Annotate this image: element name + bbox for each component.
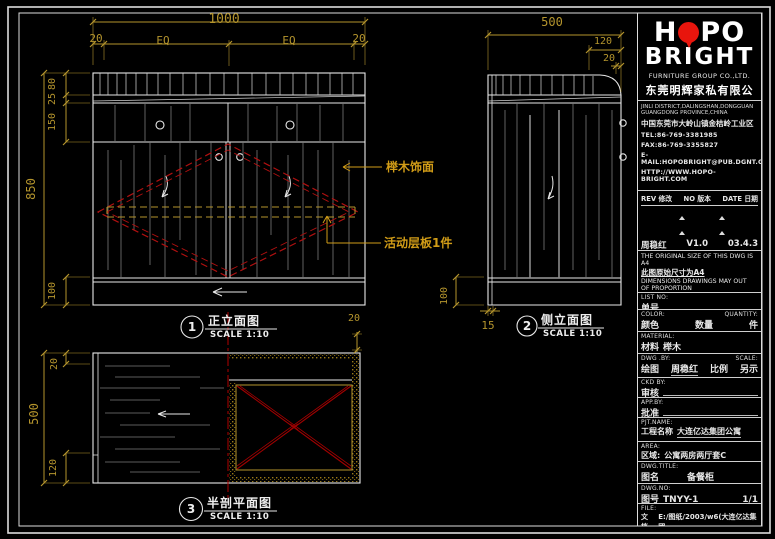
- revision-row: 周稳红 V1.0 03.4.3: [641, 236, 758, 251]
- field-app: APP.BY: 批准: [638, 398, 761, 418]
- note-en2: DIMENSIONS DRAWINGS MAY OUT: [641, 278, 758, 285]
- dim-front-150: 150: [48, 113, 58, 131]
- cad-sheet: 1000 20 EQ EQ 20 850 80 25 150 100 榉木饰面 …: [0, 0, 775, 539]
- field-list-no: LIST NO: 单号: [638, 293, 761, 310]
- field-area: AREA: 区域:公寓两房两厅套C: [638, 442, 761, 462]
- title-block: H PO BRIGHT FURNITURE GROUP CO.,LTD. 东莞明…: [637, 13, 762, 526]
- view-label-marks: [180, 316, 605, 521]
- field-ckd: CKD BY: 审核: [638, 378, 761, 398]
- rev-col: REV 修改: [641, 193, 672, 203]
- rev-version: V1.0: [686, 239, 708, 251]
- revision-table: REV 修改 NO 版本 DATE 日期 周稳红 V1.0 03.4.3: [638, 191, 761, 251]
- revision-empty-row: [641, 206, 758, 221]
- date-col: DATE 日期: [722, 193, 758, 203]
- label-shelf: 活动层板1件: [384, 237, 452, 249]
- logo-subtitle: FURNITURE GROUP CO.,LTD.: [641, 72, 758, 80]
- dim-side-500: 500: [541, 16, 563, 28]
- note-en1: THE ORIGINAL SIZE OF THIS DWG IS A4: [641, 253, 758, 267]
- address-fax: FAX:86-769-3355827: [641, 142, 758, 149]
- revision-header: REV 修改 NO 版本 DATE 日期: [641, 193, 758, 206]
- leader-lines: [323, 163, 382, 243]
- dim-side-100: 100: [440, 287, 450, 305]
- note-cn1: 此图原始尺寸为A4: [641, 267, 758, 278]
- field-project: PJT.NAME: 工程名称大连亿达集团公寓: [638, 418, 761, 442]
- logo-red-circle-icon: [678, 22, 699, 43]
- rev-date: 03.4.3: [728, 239, 758, 251]
- field-color-qty: COLOR: QUANTITY: 颜色 数量 件: [638, 310, 761, 332]
- dim-front-20-right: 20: [352, 33, 365, 44]
- dim-plan-20: 20: [50, 358, 60, 370]
- dim-side-120: 120: [594, 37, 612, 47]
- logo-hopo: H PO: [641, 19, 758, 46]
- logo-po: PO: [700, 19, 745, 46]
- note-en3: OF PROPORTION: [641, 285, 758, 292]
- dim-front-80: 80: [48, 78, 58, 90]
- revision-empty-row: [641, 221, 758, 236]
- address-block: JINLI DISTRICT,DALINGSHAN,DONGGUAN GUANG…: [638, 101, 761, 191]
- dim-plan-20-right: 20: [348, 314, 360, 324]
- dim-front-width: 1000: [208, 13, 239, 26]
- view2-title: 侧立面图: [541, 314, 593, 326]
- address-web: HTTP://WWW.HOPO-BRIGHT.COM: [641, 169, 758, 183]
- logo-bright: BRIGHT: [641, 46, 758, 69]
- view1-scale: SCALE 1:10: [210, 331, 269, 340]
- address-cn: 中国东莞市大岭山镇金桔岭工业区: [641, 118, 758, 129]
- dim-front-eq2: EQ: [282, 35, 295, 46]
- dim-plan-500: 500: [28, 403, 40, 425]
- dim-plan-120: 120: [49, 459, 59, 477]
- front-elevation-drawing: [93, 73, 365, 305]
- view3-number: 3: [187, 503, 195, 515]
- dim-front-100: 100: [48, 282, 58, 300]
- dim-front-eq1: EQ: [156, 35, 169, 46]
- view3-scale: SCALE 1:10: [210, 513, 269, 522]
- address-email: E-MAIL:HOPOBRIGHT@PUB.DGNT.GD.CN: [641, 152, 758, 166]
- dim-front-height: 850: [25, 178, 37, 200]
- logo-company-cn: 东莞明辉家私有限公司: [641, 82, 758, 101]
- plan-section-drawing: [93, 353, 360, 483]
- view2-number: 2: [523, 320, 531, 332]
- address-tel: TEL:86-769-3381985: [641, 132, 758, 139]
- section-hatch: [229, 354, 359, 482]
- field-dwg-title: DWG.TITLE: 图名备餐柜: [638, 462, 761, 484]
- field-dwg-no: DWG.NO: 图号TNYY-11/1: [638, 484, 761, 504]
- address-en2: GUANGDONG PROVINCE,CHINA: [641, 110, 758, 116]
- view1-number: 1: [188, 321, 196, 333]
- view2-scale: SCALE 1:10: [543, 330, 602, 339]
- rev-name: 周稳红: [641, 239, 667, 251]
- logo-h: H: [654, 19, 678, 46]
- view1-title: 正立面图: [208, 315, 260, 327]
- field-material: MATERIAL: 材料榉木: [638, 332, 761, 354]
- field-file: FILE: 文档E:/图纸/2003/w6(大连亿达集团: [638, 504, 761, 526]
- notes-block: THE ORIGINAL SIZE OF THIS DWG IS A4 此图原始…: [638, 251, 761, 293]
- field-dwgby-scale: DWG .BY: SCALE: 绘图 周稳红 比例 另示: [638, 354, 761, 378]
- label-veneer: 榉木饰面: [386, 161, 434, 173]
- logo-block: H PO BRIGHT FURNITURE GROUP CO.,LTD. 东莞明…: [638, 13, 761, 101]
- view3-title: 半剖平面图: [207, 497, 272, 509]
- dim-side-15: 15: [481, 320, 494, 331]
- dim-side-20: 20: [603, 54, 615, 64]
- no-col: NO 版本: [684, 193, 711, 203]
- dim-front-20-left: 20: [89, 33, 102, 44]
- dim-front-25: 25: [48, 93, 58, 105]
- side-elevation-drawing: [488, 75, 626, 305]
- dimension-lines: [41, 17, 624, 486]
